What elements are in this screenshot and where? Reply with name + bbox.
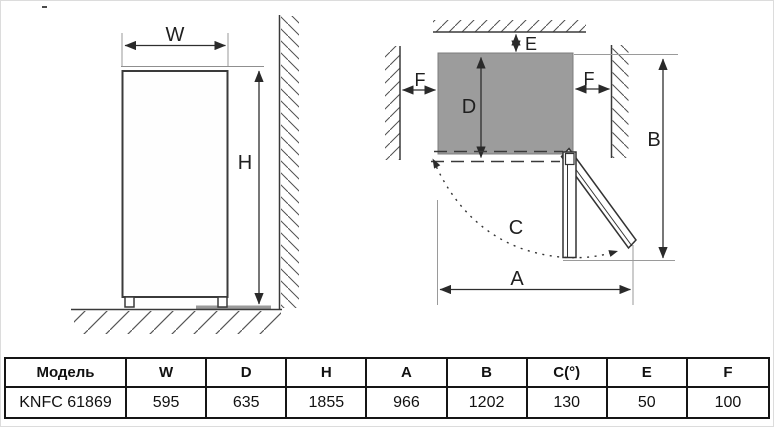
rear-wall-hatching [433, 20, 586, 32]
table-row: KNFC 61869 595 635 1855 966 1202 130 50 … [6, 388, 768, 417]
width-label: W [166, 24, 185, 46]
fridge-foot-left [125, 297, 134, 307]
right-gap-label: F [584, 69, 595, 89]
total-depth-label: B [647, 129, 660, 151]
cell-f: 100 [688, 388, 768, 417]
header-model: Модель [6, 359, 127, 386]
floor-shadow [196, 306, 271, 310]
specifications-table: Модель W D H A B C(°) E F KNFC 61869 595… [4, 357, 770, 419]
header-a: A [367, 359, 447, 386]
wall-hatching-right [281, 16, 299, 308]
floor-hatching [74, 311, 281, 334]
header-f: F [688, 359, 768, 386]
cell-e: 50 [608, 388, 688, 417]
table-header-row: Модель W D H A B C(°) E F [6, 359, 768, 388]
cell-c: 130 [528, 388, 608, 417]
header-e: E [608, 359, 688, 386]
door-width-label: A [510, 268, 524, 290]
fridge-front-body [123, 71, 228, 297]
front-view-diagram: W H [71, 15, 299, 334]
swing-arc-arrowhead-end [608, 250, 618, 257]
door-swing-label: C [509, 217, 523, 239]
fridge-foot-right [218, 297, 227, 307]
header-c: C(°) [528, 359, 608, 386]
cell-a: 966 [367, 388, 447, 417]
header-w: W [127, 359, 207, 386]
header-d: D [207, 359, 287, 386]
left-wall-hatching [385, 46, 400, 160]
header-b: B [448, 359, 528, 386]
height-label: H [238, 152, 252, 174]
installation-diagram: W H E F F D [0, 0, 774, 350]
dimensions-sheet: W H E F F D [0, 0, 774, 427]
cell-b: 1202 [448, 388, 528, 417]
cell-model: KNFC 61869 [6, 388, 127, 417]
door-hinge [566, 154, 575, 165]
swing-arc-arrowhead-start [433, 159, 441, 169]
cell-h: 1855 [287, 388, 367, 417]
header-h: H [287, 359, 367, 386]
fridge-top-body [438, 53, 573, 154]
cell-w: 595 [127, 388, 207, 417]
top-gap-label: E [525, 34, 537, 54]
right-wall-hatching [613, 45, 629, 158]
cell-d: 635 [207, 388, 287, 417]
top-view-diagram: E F F D C [385, 20, 678, 305]
depth-label: D [462, 96, 476, 118]
door-open-90 [563, 152, 576, 258]
left-gap-label: F [415, 70, 426, 90]
